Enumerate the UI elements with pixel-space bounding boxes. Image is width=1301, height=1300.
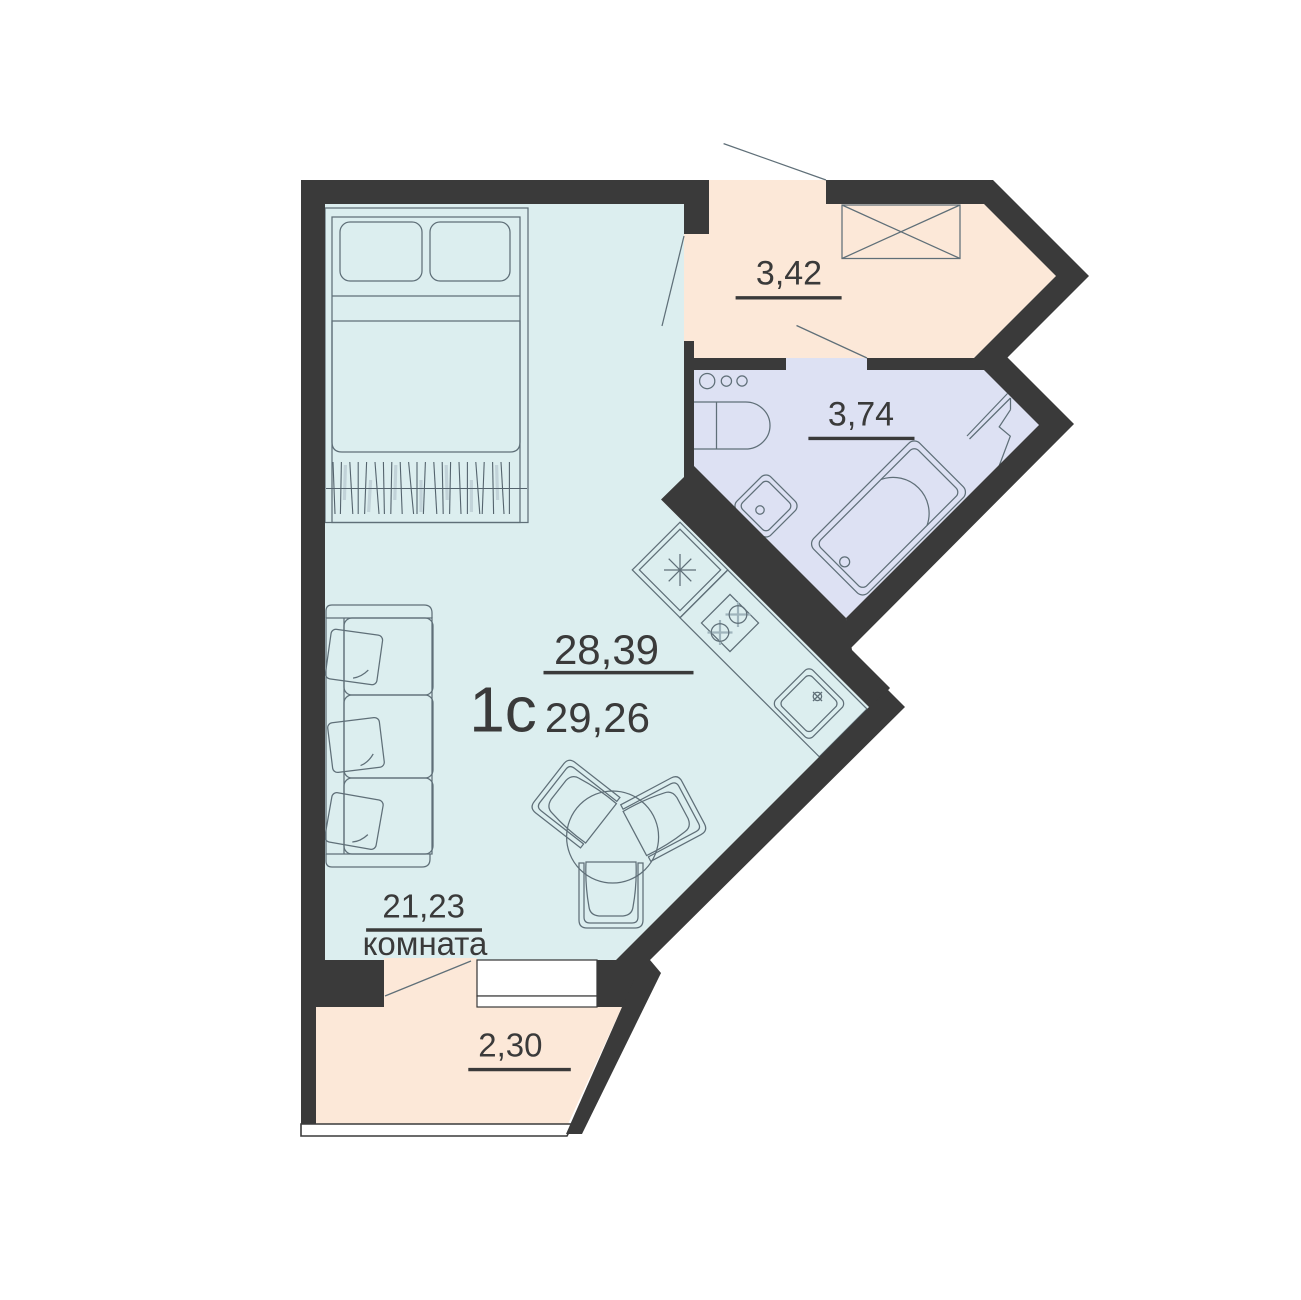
svg-text:комната: комната	[363, 925, 488, 962]
svg-text:1с: 1с	[469, 674, 537, 746]
svg-text:29,26: 29,26	[545, 694, 650, 741]
svg-text:28,39: 28,39	[554, 626, 659, 673]
svg-text:2,30: 2,30	[478, 1027, 542, 1064]
svg-text:21,23: 21,23	[382, 888, 465, 925]
svg-text:3,74: 3,74	[828, 396, 894, 434]
svg-text:3,42: 3,42	[756, 255, 822, 293]
